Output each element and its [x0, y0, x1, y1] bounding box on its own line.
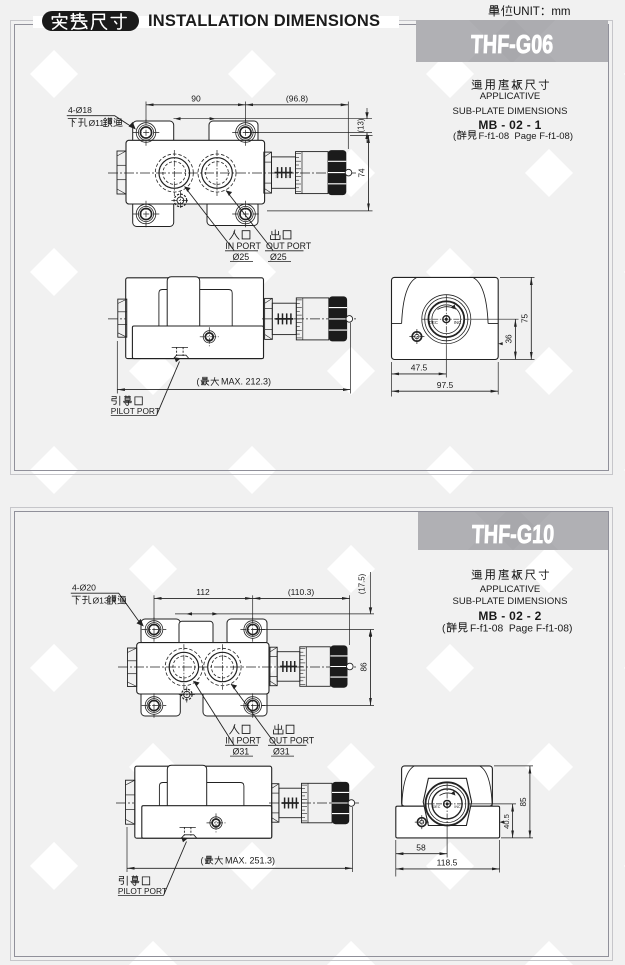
svg-text:47.5: 47.5	[411, 363, 428, 373]
svg-text:85: 85	[519, 797, 528, 807]
svg-text:Ø31: Ø31	[273, 747, 290, 757]
svg-text:(96.8): (96.8)	[286, 94, 308, 104]
svg-text:DEC: DEC	[429, 320, 438, 325]
svg-text:DEC: DEC	[433, 805, 441, 809]
svg-text:58: 58	[416, 842, 426, 852]
svg-text:(: (	[197, 377, 200, 387]
svg-text:INC: INC	[454, 805, 461, 809]
svg-text:Ø13: Ø13	[93, 595, 109, 605]
svg-text:97.5: 97.5	[437, 380, 454, 390]
svg-text:OUT PORT: OUT PORT	[269, 736, 315, 746]
svg-text:PILOT PORT: PILOT PORT	[111, 406, 160, 416]
svg-text:IN PORT: IN PORT	[225, 241, 261, 251]
svg-text:36: 36	[505, 334, 514, 344]
svg-text:Ø25: Ø25	[233, 252, 250, 262]
svg-text:(13): (13)	[357, 118, 366, 132]
svg-text:74: 74	[358, 168, 367, 178]
svg-text:86: 86	[360, 662, 369, 672]
svg-text:10: 10	[286, 175, 290, 179]
svg-text:4-Ø18: 4-Ø18	[68, 105, 92, 115]
svg-text:4-Ø20: 4-Ø20	[72, 583, 96, 593]
svg-text:(17.5): (17.5)	[358, 573, 367, 594]
svg-text:IN PORT: IN PORT	[225, 736, 261, 746]
svg-text:75: 75	[521, 314, 530, 324]
svg-text:(110.3): (110.3)	[288, 587, 314, 597]
svg-text:PILOT PORT: PILOT PORT	[118, 886, 167, 896]
svg-text:Ø25: Ø25	[270, 252, 287, 262]
svg-text:(: (	[201, 855, 204, 865]
svg-text:OUT PORT: OUT PORT	[266, 241, 312, 251]
svg-text:Ø31: Ø31	[233, 747, 250, 757]
svg-text:MAX. 251.3): MAX. 251.3)	[225, 855, 275, 865]
svg-text:40.5: 40.5	[502, 814, 511, 829]
svg-text:90: 90	[191, 94, 201, 104]
svg-text:118.5: 118.5	[437, 858, 458, 868]
svg-text:INC: INC	[454, 320, 461, 325]
svg-text:Ø11: Ø11	[89, 118, 105, 128]
svg-text:20: 20	[275, 175, 279, 179]
svg-text:112: 112	[196, 587, 210, 597]
svg-text:MAX. 212.3): MAX. 212.3)	[221, 377, 271, 387]
